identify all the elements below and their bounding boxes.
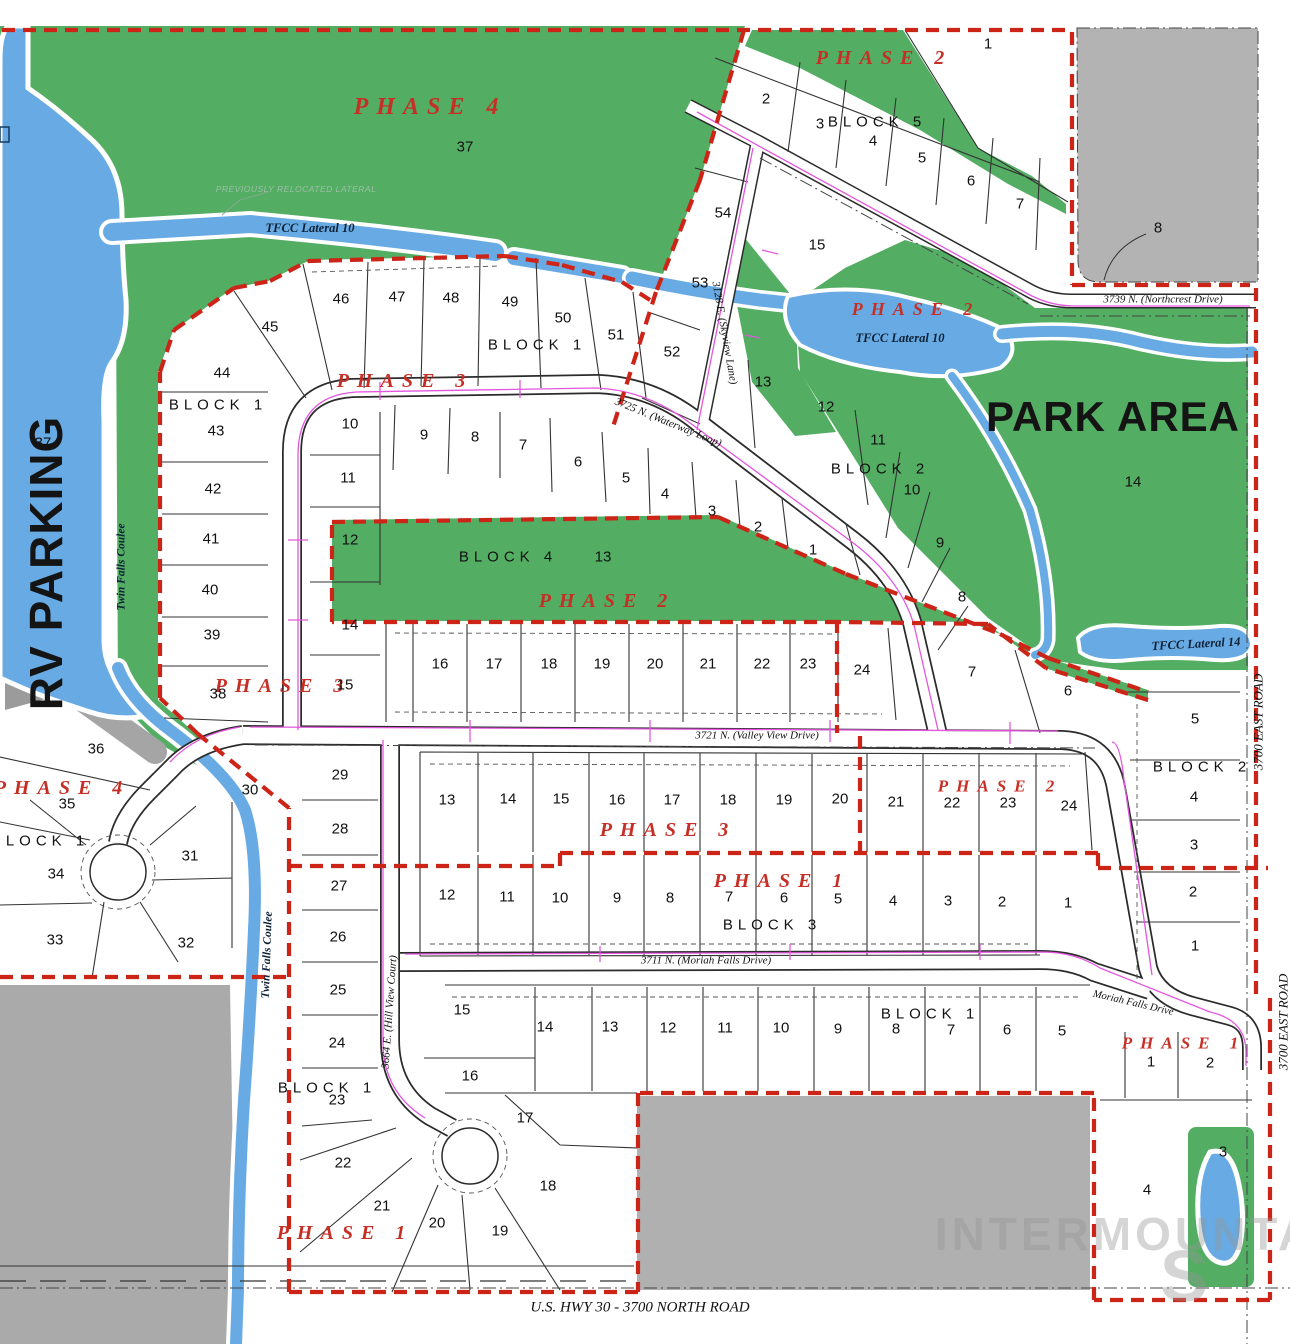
parcel-northeast <box>1077 28 1258 282</box>
tfcc-lateral14-pond <box>1078 625 1252 661</box>
plat-map: PHASE 4PHASE 2PHASE 3PHASE 2PHASE 2PHASE… <box>0 0 1290 1344</box>
parcel-south-center <box>637 1096 1090 1290</box>
west-culdesac-bulb <box>90 844 146 900</box>
southeast-pond <box>1198 1151 1243 1263</box>
hillview-culdesac-bulb <box>442 1128 498 1184</box>
plat-map-graphics <box>0 0 1290 1344</box>
park-northeast-band <box>745 30 1066 214</box>
parcel-southwest <box>0 985 236 1344</box>
